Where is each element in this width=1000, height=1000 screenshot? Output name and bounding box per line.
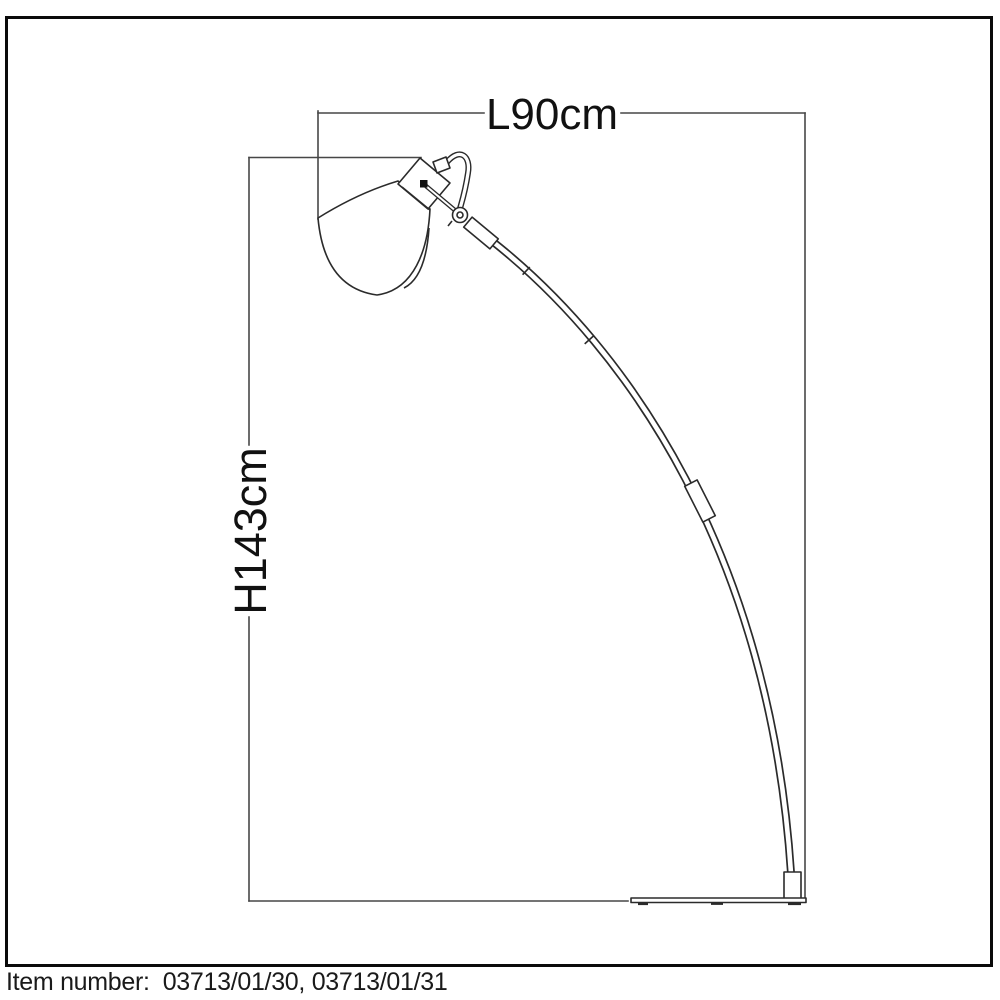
item-number-caption: Item number: 03713/01/30, 03713/01/31 [6,967,996,999]
lamp-shade [318,181,430,295]
upper-pole-sleeve [464,217,499,249]
arc-pole-core [492,241,791,873]
base-bar [631,898,806,903]
height-dimension-label: H143cm [225,447,276,615]
pole-connector-sleeve [685,480,716,522]
hook-mount-tab [433,157,450,173]
arc-pole-outline [492,241,791,873]
item-number-value: 03713/01/30, 03713/01/31 [163,967,448,997]
base-pad-right [788,903,801,906]
lamp-drawing [318,154,806,905]
arm-clamp-ring [453,208,468,223]
pole-foot [784,872,801,900]
product-dimension-sheet: L90cm H143cm [0,0,1000,1000]
lamp-technical-drawing: L90cm H143cm [0,0,1000,1000]
item-number-label: Item number: [6,967,150,997]
length-dimension-label: L90cm [486,90,618,139]
head-pivot [420,180,428,188]
arm-clamp-nub [448,221,452,226]
base-pad-middle [711,902,723,905]
base-pad-left [638,903,648,906]
